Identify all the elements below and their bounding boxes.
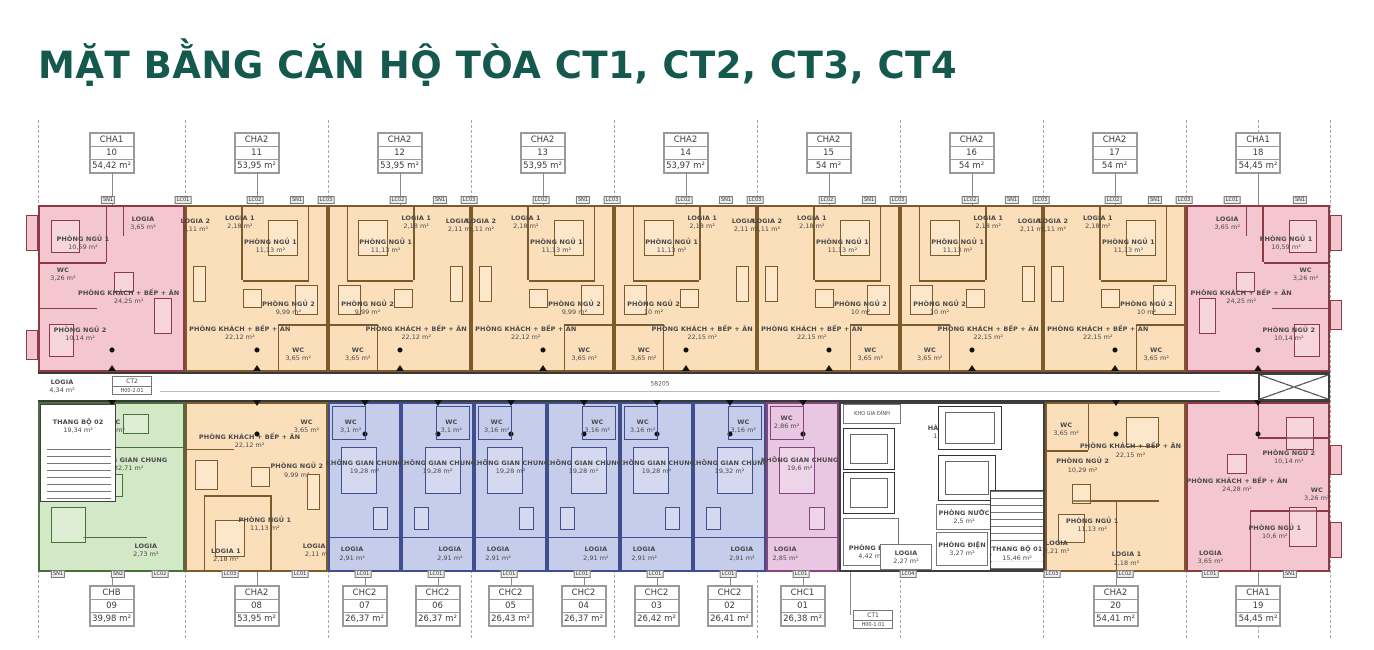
room-name: THANG BỘ 01 xyxy=(992,545,1043,553)
interior-wall xyxy=(187,449,234,450)
room-area: 22,15 m² xyxy=(1047,333,1148,341)
room-label: WC3,65 m² xyxy=(1053,421,1078,437)
unit-label-type: CHA1 xyxy=(1237,134,1279,147)
unit-label-area: 53,95 m² xyxy=(379,160,421,172)
edge-tag: LC02 xyxy=(1117,570,1134,578)
unit-label-type: CHA2 xyxy=(808,134,850,147)
interior-wall xyxy=(1246,207,1247,236)
room-name: PHÒNG NGỦ 1 xyxy=(1260,235,1313,243)
room-name: PHÒNG NGỦ 1 xyxy=(359,238,412,246)
unit-label-area: 53,95 m² xyxy=(236,613,278,625)
unit-label-box: CHA21453,97 m² xyxy=(663,132,709,174)
room-area: 2,91 m² xyxy=(485,553,510,561)
room-area: 19,6 m² xyxy=(761,464,838,472)
unit-label-type: CHA1 xyxy=(1237,587,1279,600)
room-area: 2,18 m² xyxy=(1083,222,1113,230)
room-label: LOGIA4,34 m² xyxy=(49,378,74,394)
unit-label-area: 54 m² xyxy=(951,160,993,172)
entry-dot xyxy=(683,348,688,353)
room-label: LOGIA2,91 m² xyxy=(583,545,608,561)
unit-label-area: 53,95 m² xyxy=(236,160,278,172)
edge-tag: LC03 xyxy=(747,196,764,204)
room-area: 10 m² xyxy=(913,308,966,316)
room-area: 2,18 m² xyxy=(511,222,541,230)
edge-tag: LC01 xyxy=(501,570,518,578)
edge-tag: SN1 xyxy=(433,196,447,204)
room-area: 3,65 m² xyxy=(345,354,370,362)
room-name: KHÔNG GIAN CHUNG xyxy=(545,459,622,467)
room-name: WC xyxy=(50,266,75,274)
edge-tag: LC01 xyxy=(175,196,192,204)
edge-tag: LC02 xyxy=(1105,196,1122,204)
room-area: 3,65 m² xyxy=(1198,557,1223,565)
electrical-room: PHÒNG ĐIỆN3,27 m² xyxy=(936,532,988,566)
elevator-shaft xyxy=(843,428,895,470)
room-label: PHÒNG NGỦ 111,13 m² xyxy=(645,238,698,254)
room-label: LOGIA2,73 m² xyxy=(133,542,158,558)
room-name: PHÒNG KHÁCH + BẾP + ĂN xyxy=(1080,442,1181,450)
room-label: THANG BỘ 0219,34 m² xyxy=(53,418,104,434)
interior-wall xyxy=(594,207,595,280)
room-label: WC3,26 m² xyxy=(1304,486,1329,502)
room-area: 3,65 m² xyxy=(857,354,882,362)
interior-wall xyxy=(476,537,545,538)
room-area: 3,65 m² xyxy=(285,354,310,362)
room-name: LOGIA xyxy=(1214,215,1239,223)
unit-label-box: CHC20726,37 m² xyxy=(342,585,388,627)
balcony-tab xyxy=(1330,445,1342,475)
wc-partition xyxy=(770,406,804,440)
room-label: PHÒNG NGỦ 111,13 m² xyxy=(931,238,984,254)
room-name: WC xyxy=(571,346,596,354)
room-area: 3,65 m² xyxy=(294,426,319,434)
room-area: 3,26 m² xyxy=(1304,494,1329,502)
unit-label-area: 26,38 m² xyxy=(782,613,824,625)
unit-label-no: 03 xyxy=(636,600,678,613)
room-name: PHÒNG NƯỚC xyxy=(938,509,989,517)
room-label: PHÒNG NGỦ 29,99 m² xyxy=(262,300,315,316)
room-name: PHÒNG NGỦ 2 xyxy=(627,300,680,308)
unit-label-no: 14 xyxy=(665,147,707,160)
room-name: PHÒNG NGỦ 1 xyxy=(57,235,110,243)
room-label: PHÒNG NGỦ 111,13 m² xyxy=(238,515,291,531)
interior-wall xyxy=(204,495,205,570)
room-label: LOGIA 12,18 m² xyxy=(511,214,541,230)
room-name: PHÒNG NGỦ 2 xyxy=(1262,449,1315,457)
room-area: 11,13 m² xyxy=(1066,525,1119,533)
room-label: LOGIA 22,11 m² xyxy=(180,217,210,233)
room-area: 22,15 m² xyxy=(1080,450,1181,458)
room-area: 4,34 m² xyxy=(49,386,74,394)
block-tag-ct2: CT2H00-2.01 xyxy=(112,376,152,395)
room-name: WC xyxy=(631,346,656,354)
room-label: PHÒNG NGỦ 29,99 m² xyxy=(341,300,394,316)
room-name: WC xyxy=(1053,421,1078,429)
room-name: PHÒNG NGỦ 1 xyxy=(1248,524,1301,532)
edge-tag: LC03 xyxy=(1044,570,1061,578)
water-room: PHÒNG NƯỚC2,5 m² xyxy=(936,504,992,530)
room-name: PHÒNG KHÁCH + BẾP + ĂN xyxy=(652,324,753,332)
room-name: WC xyxy=(1143,346,1168,354)
room-label: KHÔNG GIAN CHUNG19,28 m² xyxy=(326,459,403,475)
room-name: LOGIA xyxy=(339,545,364,553)
unit-label-box: CHA21754 m² xyxy=(1092,132,1138,174)
room-area: 2,21 m² xyxy=(1044,547,1069,555)
interior-wall xyxy=(549,537,618,538)
room-label: LOGIA 12,18 m² xyxy=(1083,214,1113,230)
room-label: LOGIA2,91 m² xyxy=(485,545,510,561)
room-name: KHÔNG GIAN CHUNG xyxy=(326,459,403,467)
room-label: THANG BỘ 0115,46 m² xyxy=(992,545,1043,561)
room-area: 2,18 m² xyxy=(973,222,1003,230)
room-name: KHÔNG GIAN CHUNG xyxy=(472,459,549,467)
room-area: 2,11 m² xyxy=(180,225,210,233)
room-name: LOGIA 2 xyxy=(466,217,496,225)
room-name: WC xyxy=(1304,486,1329,494)
room-area: 22,15 m² xyxy=(761,333,862,341)
interior-wall xyxy=(695,537,764,538)
room-label: PHÒNG NGỦ 29,99 m² xyxy=(548,300,601,316)
unit-label-no: 18 xyxy=(1237,147,1279,160)
room-name: LOGIA 1 xyxy=(1083,214,1113,222)
room-area: 3,26 m² xyxy=(50,274,75,282)
room-label: WC3,65 m² xyxy=(631,346,656,362)
room-label: LOGIA2,85 m² xyxy=(773,545,798,561)
room-label: WC3,65 m² xyxy=(571,346,596,362)
edge-tag: LC01 xyxy=(428,570,445,578)
room-name: LOGIA 1 xyxy=(511,214,541,222)
label-connector xyxy=(1258,572,1259,585)
interior-wall xyxy=(919,280,986,281)
unit-label-area: 26,42 m² xyxy=(636,613,678,625)
room-label: PHÒNG KHÁCH + BẾP + ĂN22,12 m² xyxy=(199,432,300,448)
unit-label-area: 54,41 m² xyxy=(1095,613,1137,625)
room-area: 10,14 m² xyxy=(1262,334,1315,342)
unit-label-type: CHC2 xyxy=(490,587,532,600)
room-name: WC xyxy=(345,346,370,354)
room-label: PHÒNG NGỦ 111,13 m² xyxy=(530,238,583,254)
edge-tag: SN1 xyxy=(576,196,590,204)
label-connector xyxy=(850,572,851,615)
room-label: PHÒNG KHÁCH + BẾP + ĂN22,15 m² xyxy=(652,324,753,340)
room-label: WC3,65 m² xyxy=(857,346,882,362)
unit-label-box: CHA21253,95 m² xyxy=(377,132,423,174)
unit-label-type: CHA2 xyxy=(665,134,707,147)
room-name: LOGIA xyxy=(485,545,510,553)
edge-tag: LC01 xyxy=(1202,570,1219,578)
furniture xyxy=(1286,417,1314,450)
room-label: LOGIA 12,18 m² xyxy=(401,214,431,230)
edge-tag: SN1 xyxy=(290,196,304,204)
room-name: KHÔNG GIAN CHUNG xyxy=(618,459,695,467)
room-name: PHÒNG NGỦ 1 xyxy=(1066,517,1119,525)
room-label: LOGIA 12,18 m² xyxy=(797,214,827,230)
room-area: 10 m² xyxy=(834,308,887,316)
unit-label-type: CHC2 xyxy=(344,587,386,600)
unit-label-box: CHA21654 m² xyxy=(949,132,995,174)
room-area: 19,28 m² xyxy=(618,467,695,475)
edge-tag: SN1 xyxy=(862,196,876,204)
edge-tag: LC03 xyxy=(318,196,335,204)
room-area: 24,25 m² xyxy=(78,297,179,305)
edge-tag: LC02 xyxy=(676,196,693,204)
room-area: 3,65 m² xyxy=(631,354,656,362)
unit-label-type: CHB xyxy=(91,587,133,600)
room-name: PHÒNG NGỦ 2 xyxy=(54,326,107,334)
room-area: 22,15 m² xyxy=(652,333,753,341)
room-name: PHÒNG KHÁCH + BẾP + ĂN xyxy=(938,324,1039,332)
room-name: LOGIA xyxy=(1198,549,1223,557)
room-label: KHÔNG GIAN CHUNG19,28 m² xyxy=(399,459,476,475)
room-name: WC xyxy=(294,417,319,425)
edge-tag: LC02 xyxy=(152,570,169,578)
unit-label-area: 26,43 m² xyxy=(490,613,532,625)
room-name: PHÒNG NGỦ 1 xyxy=(1102,238,1155,246)
room-area: 22,12 m² xyxy=(189,333,290,341)
unit-label-type: CHC2 xyxy=(563,587,605,600)
interior-wall xyxy=(1166,207,1167,280)
room-area: 3,65 m² xyxy=(917,354,942,362)
wc-partition xyxy=(332,406,366,440)
entry-dot xyxy=(1112,348,1117,353)
unit-label-no: 06 xyxy=(417,600,459,613)
room-area: 22,12 m² xyxy=(199,441,300,449)
furniture xyxy=(479,266,493,302)
interior-wall xyxy=(83,537,147,538)
furniture xyxy=(51,507,85,544)
unit-label-box: CHC20426,37 m² xyxy=(561,585,607,627)
furniture xyxy=(680,289,699,309)
room-area: 24,28 m² xyxy=(1186,485,1287,493)
room-name: PHÒNG NGỦ 2 xyxy=(262,300,315,308)
room-label: PHÒNG NGỦ 111,13 m² xyxy=(816,238,869,254)
room-name: LOGIA xyxy=(437,545,462,553)
unit-label-area: 53,97 m² xyxy=(665,160,707,172)
room-area: 2,73 m² xyxy=(133,550,158,558)
unit-label-no: 13 xyxy=(522,147,564,160)
room-label: LOGIA3,65 m² xyxy=(1198,549,1223,565)
furniture xyxy=(394,289,413,309)
unit-label-box: CHA11954,45 m² xyxy=(1235,585,1281,627)
edge-tag: LC01 xyxy=(1224,196,1241,204)
interior-wall xyxy=(1272,308,1328,309)
room-area: 2,18 m² xyxy=(401,222,431,230)
room-name: LOGIA xyxy=(1044,539,1069,547)
wc-partition xyxy=(582,406,616,440)
room-area: 3,26 m² xyxy=(1293,274,1318,282)
elevator-shaft xyxy=(938,406,1002,450)
room-name: LOGIA xyxy=(773,545,798,553)
room-name: LOGIA xyxy=(729,545,754,553)
unit-label-type: CHA2 xyxy=(379,134,421,147)
furniture xyxy=(1101,289,1120,309)
edge-tag: LC02 xyxy=(390,196,407,204)
edge-tag: LC01 xyxy=(574,570,591,578)
room-label: PHÒNG ĐIỆN3,27 m² xyxy=(938,541,986,557)
unit-label-type: CHC2 xyxy=(417,587,459,600)
room-area: 2,91 m² xyxy=(631,553,656,561)
room-label: LOGIA3,65 m² xyxy=(130,215,155,231)
furniture xyxy=(1227,454,1247,474)
unit-label-no: 17 xyxy=(1094,147,1136,160)
unit-label-no: 04 xyxy=(563,600,605,613)
room-name: PHÒNG KHÁCH + BẾP + ĂN xyxy=(1186,477,1287,485)
unit-label-type: CHA2 xyxy=(1095,587,1137,600)
room-area: 3,27 m² xyxy=(938,549,986,557)
furniture xyxy=(251,467,270,487)
room-label: KHÔNG GIAN CHUNG19,28 m² xyxy=(472,459,549,475)
room-area: 2,11 m² xyxy=(752,225,782,233)
entry-dot xyxy=(540,348,545,353)
room-area: 15,46 m² xyxy=(992,553,1043,561)
room-label: PHÒNG NGỦ 210,14 m² xyxy=(54,326,107,342)
edge-tag: LC03 xyxy=(1176,196,1193,204)
unit-label-area: 26,37 m² xyxy=(563,613,605,625)
room-label: PHÒNG NGỦ 210 m² xyxy=(1120,300,1173,316)
unit-label-type: CHA1 xyxy=(91,134,133,147)
interior-wall xyxy=(919,207,920,280)
block-name: CT2 xyxy=(113,377,151,387)
room-area: 9,99 m² xyxy=(270,470,323,478)
room-label: PHÒNG NGỦ 210,14 m² xyxy=(1262,326,1315,342)
interior-wall xyxy=(123,207,124,236)
unit-label-box: CHA21353,95 m² xyxy=(520,132,566,174)
room-label: PHÒNG NGỦ 111,13 m² xyxy=(359,238,412,254)
balcony-tab xyxy=(1330,300,1342,330)
edge-tag: SN1 xyxy=(101,196,115,204)
room-label: PHÒNG KHÁCH + BẾP + ĂN24,25 m² xyxy=(78,289,179,305)
room-label: PHÒNG KHÁCH + BẾP + ĂN22,15 m² xyxy=(1080,442,1181,458)
unit-label-type: CHA2 xyxy=(236,587,278,600)
room-area: 11,13 m² xyxy=(530,246,583,254)
edge-tag: LC01 xyxy=(720,570,737,578)
furniture xyxy=(450,266,464,302)
room-name: PHÒNG KHÁCH + BẾP + ĂN xyxy=(366,324,467,332)
edge-tag: SN1 xyxy=(1148,196,1162,204)
entry-marker xyxy=(682,365,690,371)
axis-line xyxy=(1330,120,1331,638)
edge-tag: LC03 xyxy=(604,196,621,204)
room-label: LOGIA 22,11 m² xyxy=(1038,217,1068,233)
room-name: PHÒNG KHÁCH + BẾP + ĂN xyxy=(761,324,862,332)
room-area: 22,12 m² xyxy=(475,333,576,341)
elevator-shaft xyxy=(843,472,895,514)
room-label: WC3,65 m² xyxy=(1143,346,1168,362)
unit-label-no: 05 xyxy=(490,600,532,613)
corridor-dimension: 58205 xyxy=(650,381,669,388)
edge-tag: SN1 xyxy=(719,196,733,204)
block-code: H00-2.01 xyxy=(113,387,151,395)
edge-tag: LC02 xyxy=(533,196,550,204)
unit-label-no: 01 xyxy=(782,600,824,613)
room-label: LOGIA2,91 m² xyxy=(339,545,364,561)
unit-label-area: 26,37 m² xyxy=(417,613,459,625)
room-label: PHÒNG KHÁCH + BẾP + ĂN24,28 m² xyxy=(1186,477,1287,493)
unit-label-area: 39,98 m² xyxy=(91,613,133,625)
room-label: LOGIA2,91 m² xyxy=(437,545,462,561)
room-area: 22,12 m² xyxy=(366,333,467,341)
furniture xyxy=(307,474,321,511)
unit-label-box: CHA21554 m² xyxy=(806,132,852,174)
room-name: WC xyxy=(1293,266,1318,274)
interior-wall xyxy=(347,280,414,281)
entry-dot xyxy=(826,348,831,353)
room-area: 24,25 m² xyxy=(1191,297,1292,305)
room-area: 10,14 m² xyxy=(54,334,107,342)
apartment-unit-19: PHÒNG NGỦ 210,14 m²PHÒNG KHÁCH + BẾP + Ă… xyxy=(1186,402,1330,572)
void-shaft xyxy=(1258,373,1330,401)
balcony-tab xyxy=(1330,522,1342,558)
unit-label-no: 11 xyxy=(236,147,278,160)
unit-label-type: CHC1 xyxy=(782,587,824,600)
room-label: WC3,65 m² xyxy=(285,346,310,362)
room-label: PHÒNG KHÁCH + BẾP + ĂN24,25 m² xyxy=(1191,289,1292,305)
furniture xyxy=(809,507,824,530)
room-label: PHÒNG NGỦ 29,99 m² xyxy=(270,462,323,478)
furniture xyxy=(560,507,575,530)
room-name: KHÔNG GIAN CHUNG xyxy=(691,459,768,467)
wc-partition xyxy=(478,406,512,440)
apartment-unit-08: PHÒNG KHÁCH + BẾP + ĂN22,12 m²WC3,65 m²P… xyxy=(185,402,328,572)
room-name: PHÒNG KHÁCH + BẾP + ĂN xyxy=(1047,324,1148,332)
room-area: 2,11 m² xyxy=(466,225,496,233)
room-label: PHÒNG NGỦ 110,59 m² xyxy=(1260,235,1313,251)
room-label: WC3,65 m² xyxy=(294,417,319,433)
room-label: PHÒNG KHÁCH + BẾP + ĂN22,15 m² xyxy=(761,324,862,340)
unit-label-box: CHC20226,41 m² xyxy=(707,585,753,627)
unit-label-type: CHA2 xyxy=(951,134,993,147)
room-name: PHÒNG NGỦ 2 xyxy=(1120,300,1173,308)
entry-marker xyxy=(396,365,404,371)
furniture xyxy=(529,289,548,309)
interior-wall xyxy=(204,495,271,496)
unit-label-box: CHA21153,95 m² xyxy=(234,132,280,174)
furniture xyxy=(815,289,834,309)
unit-label-area: 54,45 m² xyxy=(1237,160,1279,172)
room-label: KHÔNG GIAN CHUNG19,32 m² xyxy=(691,459,768,475)
entry-dot xyxy=(254,348,259,353)
room-area: 19,28 m² xyxy=(545,467,622,475)
furniture xyxy=(706,507,721,530)
furniture xyxy=(123,414,149,434)
room-label: PHÒNG NGỦ 110,59 m² xyxy=(57,235,110,251)
unit-label-type: CHA2 xyxy=(1094,134,1136,147)
unit-label-area: 54 m² xyxy=(1094,160,1136,172)
furniture xyxy=(765,266,779,302)
edge-tag: SN1 xyxy=(1005,196,1019,204)
core-logia: LOGIA2,27 m² xyxy=(880,544,932,570)
room-name: LOGIA 1 xyxy=(973,214,1003,222)
room-label: KHO GIA ĐÌNH xyxy=(853,411,891,417)
interior-wall xyxy=(622,537,691,538)
interior-wall xyxy=(243,280,310,281)
room-area: 11,13 m² xyxy=(645,246,698,254)
unit-label-no: 07 xyxy=(344,600,386,613)
room-area: 3,65 m² xyxy=(1143,354,1168,362)
unit-label-type: CHA2 xyxy=(522,134,564,147)
room-area: 2,11 m² xyxy=(1038,225,1068,233)
furniture xyxy=(193,266,207,302)
room-area: 10 m² xyxy=(1120,308,1173,316)
room-name: LOGIA xyxy=(130,215,155,223)
unit-label-no: 10 xyxy=(91,147,133,160)
room-label: LOGIA 12,18 m² xyxy=(225,214,255,230)
room-label: LOGIA2,27 m² xyxy=(893,549,918,565)
unit-label-area: 54,45 m² xyxy=(1237,613,1279,625)
balcony-tab xyxy=(26,215,38,251)
room-area: 10,14 m² xyxy=(1262,457,1315,465)
room-area: 3,65 m² xyxy=(1214,223,1239,231)
